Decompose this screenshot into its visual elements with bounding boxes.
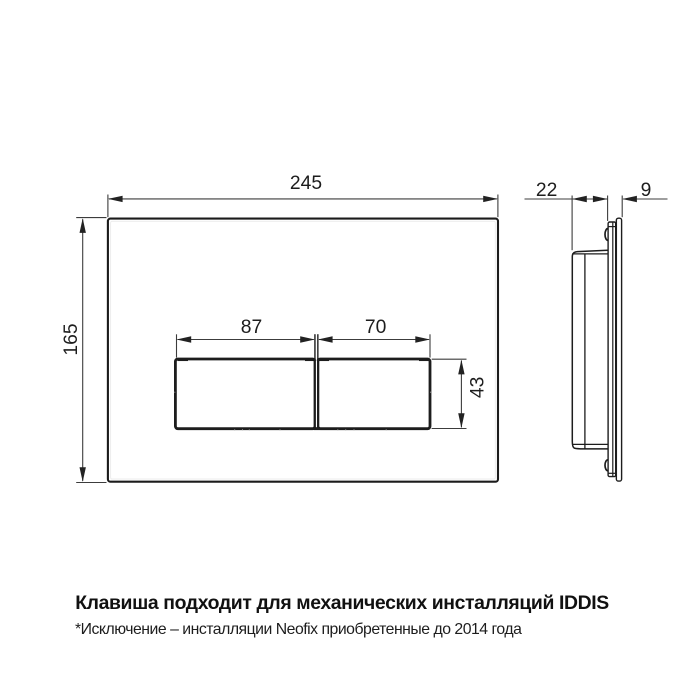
svg-text:87: 87 xyxy=(241,317,262,338)
svg-text:43: 43 xyxy=(468,377,489,398)
svg-text:Клавиша подходит для механичес: Клавиша подходит для механических инстал… xyxy=(75,592,609,614)
svg-text:165: 165 xyxy=(61,323,82,355)
svg-text:9: 9 xyxy=(641,180,652,201)
svg-text:70: 70 xyxy=(365,317,386,338)
svg-text:*Исключение – инсталляции Neof: *Исключение – инсталляции Neofix приобре… xyxy=(75,621,522,638)
svg-text:22: 22 xyxy=(536,180,557,201)
svg-text:245: 245 xyxy=(290,173,322,194)
